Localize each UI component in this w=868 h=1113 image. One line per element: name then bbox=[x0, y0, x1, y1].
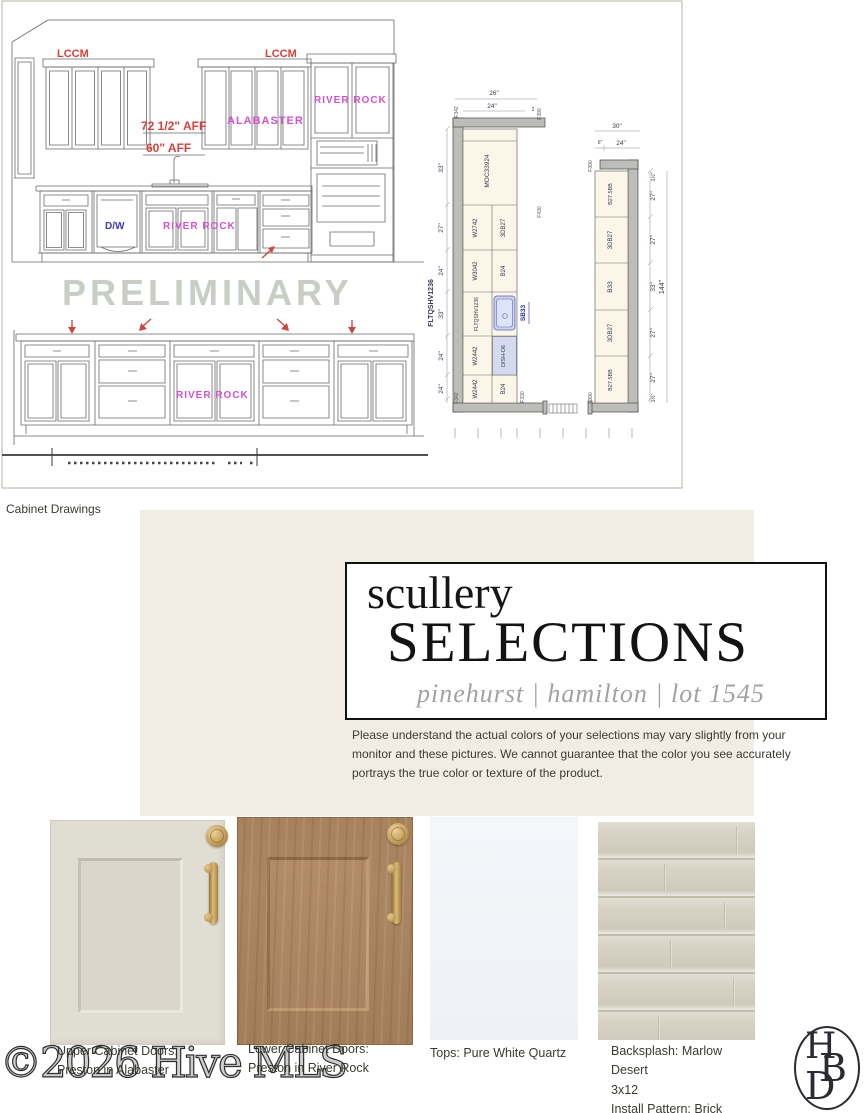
plan-label-fltqshv: FLTQSHV1236 bbox=[474, 297, 480, 331]
sample-lower-door-river-rock bbox=[237, 817, 413, 1045]
plan-dim-left-3: 33" bbox=[438, 309, 445, 319]
plan-tag-f330: F330 bbox=[520, 391, 526, 403]
plan-dim-26: 26" bbox=[489, 90, 499, 97]
plan-label-3db27-r2: 3DB27 bbox=[608, 323, 614, 342]
plan-label-moc: MOC33924 bbox=[484, 154, 491, 188]
plan-dim-left-0: 33" bbox=[438, 163, 445, 173]
plan-tag-f390c: F390 bbox=[588, 392, 594, 404]
label-dw: D/W bbox=[105, 221, 125, 232]
label-lccm-right: LCCM bbox=[265, 48, 297, 60]
plan-wall-top bbox=[453, 118, 545, 127]
label-river-rock-base: RIVER ROCK bbox=[163, 221, 236, 232]
tile-row bbox=[598, 974, 755, 1012]
plan-wall-right bbox=[628, 160, 638, 412]
plan-dim-right-1: 27" bbox=[650, 191, 657, 201]
sample-backsplash-tile bbox=[598, 822, 755, 1040]
tile-row bbox=[598, 898, 755, 936]
plan-label-w2442a: W2442 bbox=[473, 346, 479, 366]
wood-door-pull bbox=[392, 862, 401, 924]
plan-label-b275bb-bottom: B27.5BB bbox=[608, 369, 614, 391]
plan-dim-right-4: 27" bbox=[650, 328, 657, 338]
hbd-logo: H B D bbox=[794, 1026, 860, 1110]
label-river-rock-upper: RIVER ROCK bbox=[314, 95, 387, 106]
tile-row bbox=[598, 936, 755, 974]
plan-dim-left-4: 24" bbox=[438, 351, 445, 361]
cabinet-drawings-caption: Cabinet Drawings bbox=[6, 502, 101, 516]
alabaster-door-knob bbox=[206, 825, 228, 847]
sample-quartz-top bbox=[430, 817, 578, 1040]
drawing-panel-border bbox=[2, 1, 682, 488]
plan-dim-right-0: 1½" bbox=[650, 172, 657, 181]
caption-tops: Tops: Pure White Quartz bbox=[430, 1044, 610, 1063]
alabaster-door-panel bbox=[78, 858, 183, 1013]
plan-wall-bottom-right bbox=[590, 403, 638, 412]
plan-dim-6: 6" bbox=[598, 140, 603, 146]
hbd-logo-letter-d: D bbox=[805, 1067, 835, 1105]
plan-dim-left-1: 27" bbox=[438, 223, 445, 233]
wood-grain-texture bbox=[237, 817, 413, 1045]
title-box: scullery SELECTIONS pinehurst | hamilton… bbox=[345, 562, 827, 720]
title-selections: SELECTIONS bbox=[387, 610, 749, 675]
color-disclaimer: Please understand the actual colors of y… bbox=[352, 726, 804, 784]
plan-tag-f430: F430 bbox=[537, 206, 543, 218]
cabinet-drawing-panel: LCCM LCCM RIVER ROCK ALABASTER 72 1/2" A… bbox=[0, 0, 683, 490]
mls-watermark: ©2026 Hive MLS bbox=[0, 1038, 300, 1087]
label-aff-60: 60" AFF bbox=[146, 141, 191, 155]
plan-wall-left bbox=[453, 118, 463, 412]
label-alabaster: ALABASTER bbox=[227, 115, 304, 127]
tile-row bbox=[598, 822, 755, 860]
plan-dim-2: 2 bbox=[532, 107, 535, 113]
label-river-rock-lower: RIVER ROCK bbox=[176, 390, 249, 401]
plan-dim-24b: 24" bbox=[616, 140, 626, 147]
caption-backsplash: Backsplash: Marlow Desert 3x12 Install P… bbox=[611, 1042, 761, 1113]
plan-dim-right-2: 27" bbox=[650, 235, 657, 245]
plan-dim-24: 24" bbox=[487, 103, 497, 110]
plan-label-3db27-r1: 3DB27 bbox=[608, 230, 614, 249]
tile-row bbox=[598, 860, 755, 898]
label-lccm-left: LCCM bbox=[57, 48, 89, 60]
sample-upper-door-alabaster bbox=[50, 820, 225, 1045]
plan-dim-right-3: 33" bbox=[650, 282, 657, 292]
plan-label-3db27: 3DB27 bbox=[501, 218, 507, 237]
plan-label-b33: B33 bbox=[607, 281, 614, 293]
plan-dim-right-6: 1½" bbox=[650, 393, 657, 402]
caption-backsplash-line3: Install Pattern: Brick bbox=[611, 1100, 761, 1113]
label-aff-72: 72 1/2" AFF bbox=[141, 119, 206, 133]
plan-tag-f390a: F390 bbox=[537, 108, 543, 120]
plan-label-w2742: W2742 bbox=[473, 218, 479, 238]
plan-dim-144: 144" bbox=[659, 279, 666, 294]
plan-label-w3042: W3042 bbox=[473, 261, 479, 281]
plan-dim-left-5: 24" bbox=[438, 384, 445, 394]
plan-wall-bottom-left bbox=[453, 403, 545, 412]
selections-sheet-page: LCCM LCCM RIVER ROCK ALABASTER 72 1/2" A… bbox=[0, 0, 868, 1113]
caption-backsplash-line1: Backsplash: Marlow Desert bbox=[611, 1042, 761, 1081]
plan-sink-basin bbox=[497, 299, 513, 327]
plan-label-b275bb-top: B27.5BB bbox=[608, 183, 614, 205]
plan-wall-top-right bbox=[600, 160, 638, 169]
plan-label-b24a: B24 bbox=[501, 265, 507, 276]
plan-dim-left-2: 24" bbox=[438, 266, 445, 276]
wood-door-knob bbox=[387, 823, 409, 845]
caption-backsplash-line2: 3x12 bbox=[611, 1081, 761, 1100]
plan-label-dish: DISH-D6 bbox=[501, 345, 507, 367]
preliminary-watermark: PRELIMINARY bbox=[62, 272, 353, 313]
plan-dim-right-5: 27" bbox=[650, 373, 657, 383]
plan-dim-30: 30" bbox=[612, 123, 622, 130]
plan-tag-f342b: F342 bbox=[454, 392, 460, 404]
plan-label-sb33: SB33 bbox=[520, 304, 527, 321]
plan-tag-f342a: F342 bbox=[454, 106, 460, 118]
plan-label-b24b: B24 bbox=[501, 383, 507, 394]
door-jamb-left bbox=[543, 401, 547, 414]
plan-label-fltqshv-outer: FLTQSHV1236 bbox=[428, 279, 435, 327]
tile-row bbox=[598, 1012, 755, 1040]
caption-tops-line1: Tops: Pure White Quartz bbox=[430, 1044, 610, 1063]
plan-label-w2442b: W2442 bbox=[473, 379, 479, 399]
title-subtitle: pinehurst | hamilton | lot 1545 bbox=[417, 679, 765, 709]
alabaster-door-pull bbox=[209, 862, 218, 924]
plan-tag-f390b: F390 bbox=[588, 160, 594, 172]
